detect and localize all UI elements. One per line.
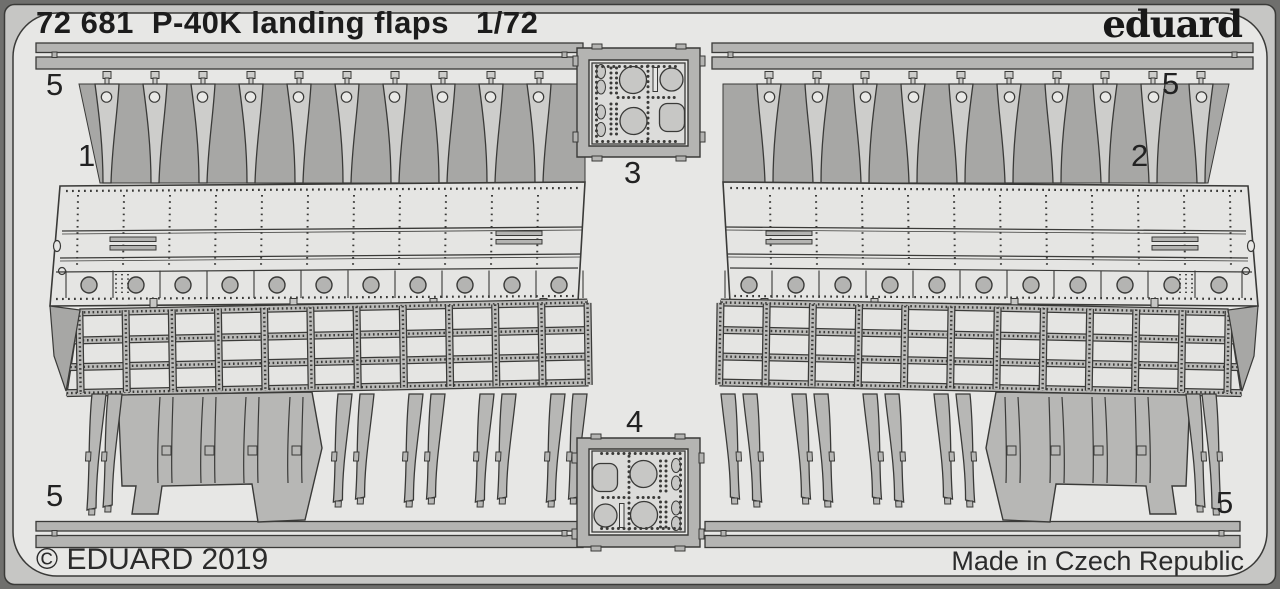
part-number-strip-top-left: 5 <box>46 67 63 103</box>
part-number-flap-left: 1 <box>78 138 95 174</box>
copyright-text: © EDUARD 2019 <box>36 543 268 577</box>
pe-fret-scan: 72 681 P-40K landing flaps 1/72 eduard ©… <box>0 0 1280 589</box>
scale-label: 1/72 <box>476 5 538 41</box>
brand-logo: eduard <box>1102 2 1242 46</box>
part-number-strip-top-right: 5 <box>1162 66 1179 102</box>
part-number-strip-bottom-left: 5 <box>46 478 63 514</box>
fret-drawing <box>0 0 1280 589</box>
flap-assembly-right <box>719 72 1258 523</box>
flap-assembly-left <box>50 72 589 523</box>
sheet-header: 72 681 P-40K landing flaps 1/72 <box>36 5 538 41</box>
product-title: P-40K landing flaps <box>152 5 449 41</box>
made-in-text: Made in Czech Republic <box>951 546 1244 577</box>
part-number-strip-bottom-right: 5 <box>1216 485 1233 521</box>
part-number-flap-right: 2 <box>1131 138 1148 174</box>
part-number-detail-bottom: 4 <box>626 404 643 440</box>
catalog-number: 72 681 <box>36 5 134 41</box>
part-number-detail-top: 3 <box>624 155 641 191</box>
